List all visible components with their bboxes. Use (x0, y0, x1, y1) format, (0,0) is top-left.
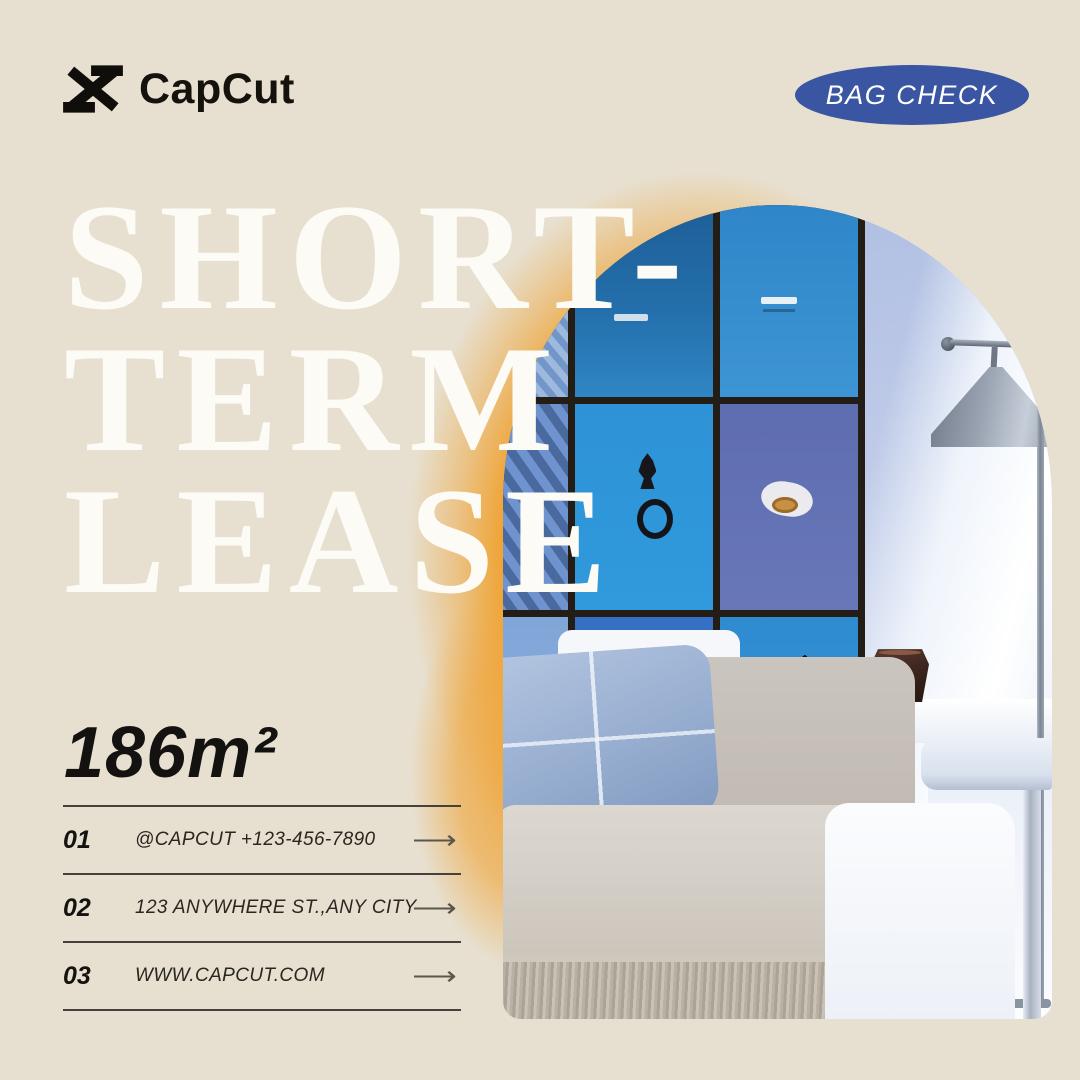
contact-row-1: 01 @CAPCUT +123-456-7890 ⟶ (63, 805, 461, 873)
contact-row-label: WWW.CAPCUT.COM (121, 965, 418, 987)
arrow-right-icon: ⟶ (412, 893, 457, 924)
sofa-armrest (825, 803, 1015, 1019)
side-table-top (921, 738, 1052, 790)
arrow-right-icon: ⟶ (412, 825, 457, 856)
contact-row-number: 03 (63, 962, 121, 991)
headline-line-3: LEASE (64, 470, 693, 612)
poster-canvas: SHORT- TERM LEASE CapCut BAG CHECK 186m²… (0, 0, 1080, 1080)
contact-row-3: 03 WWW.CAPCUT.COM ⟶ (63, 941, 461, 1009)
contact-row-number: 02 (63, 894, 121, 923)
headline: SHORT- TERM LEASE (64, 186, 693, 612)
area-stat: 186m² (64, 712, 277, 794)
arrow-right-icon: ⟶ (412, 961, 457, 992)
door-photo-handle-bar (720, 205, 858, 397)
contact-row-2: 02 123 ANYWHERE ST.,ANY CITY ⟶ (63, 873, 461, 941)
contact-list: 01 @CAPCUT +123-456-7890 ⟶ 02 123 ANYWHE… (63, 805, 461, 1011)
capcut-logo: CapCut (62, 62, 295, 116)
capcut-logo-icon (62, 62, 124, 116)
door-photo-plaque (720, 404, 858, 611)
capcut-wordmark: CapCut (139, 65, 295, 114)
headline-line-2: TERM (64, 328, 693, 470)
side-table-leg (1023, 790, 1041, 1019)
contact-row-number: 01 (63, 826, 121, 855)
bag-check-badge-label: BAG CHECK (826, 80, 999, 111)
bag-check-badge: BAG CHECK (795, 65, 1029, 125)
contact-row-label: 123 ANYWHERE ST.,ANY CITY (121, 897, 418, 919)
contact-row-label: @CAPCUT +123-456-7890 (121, 829, 418, 851)
headline-line-1: SHORT- (64, 186, 693, 328)
